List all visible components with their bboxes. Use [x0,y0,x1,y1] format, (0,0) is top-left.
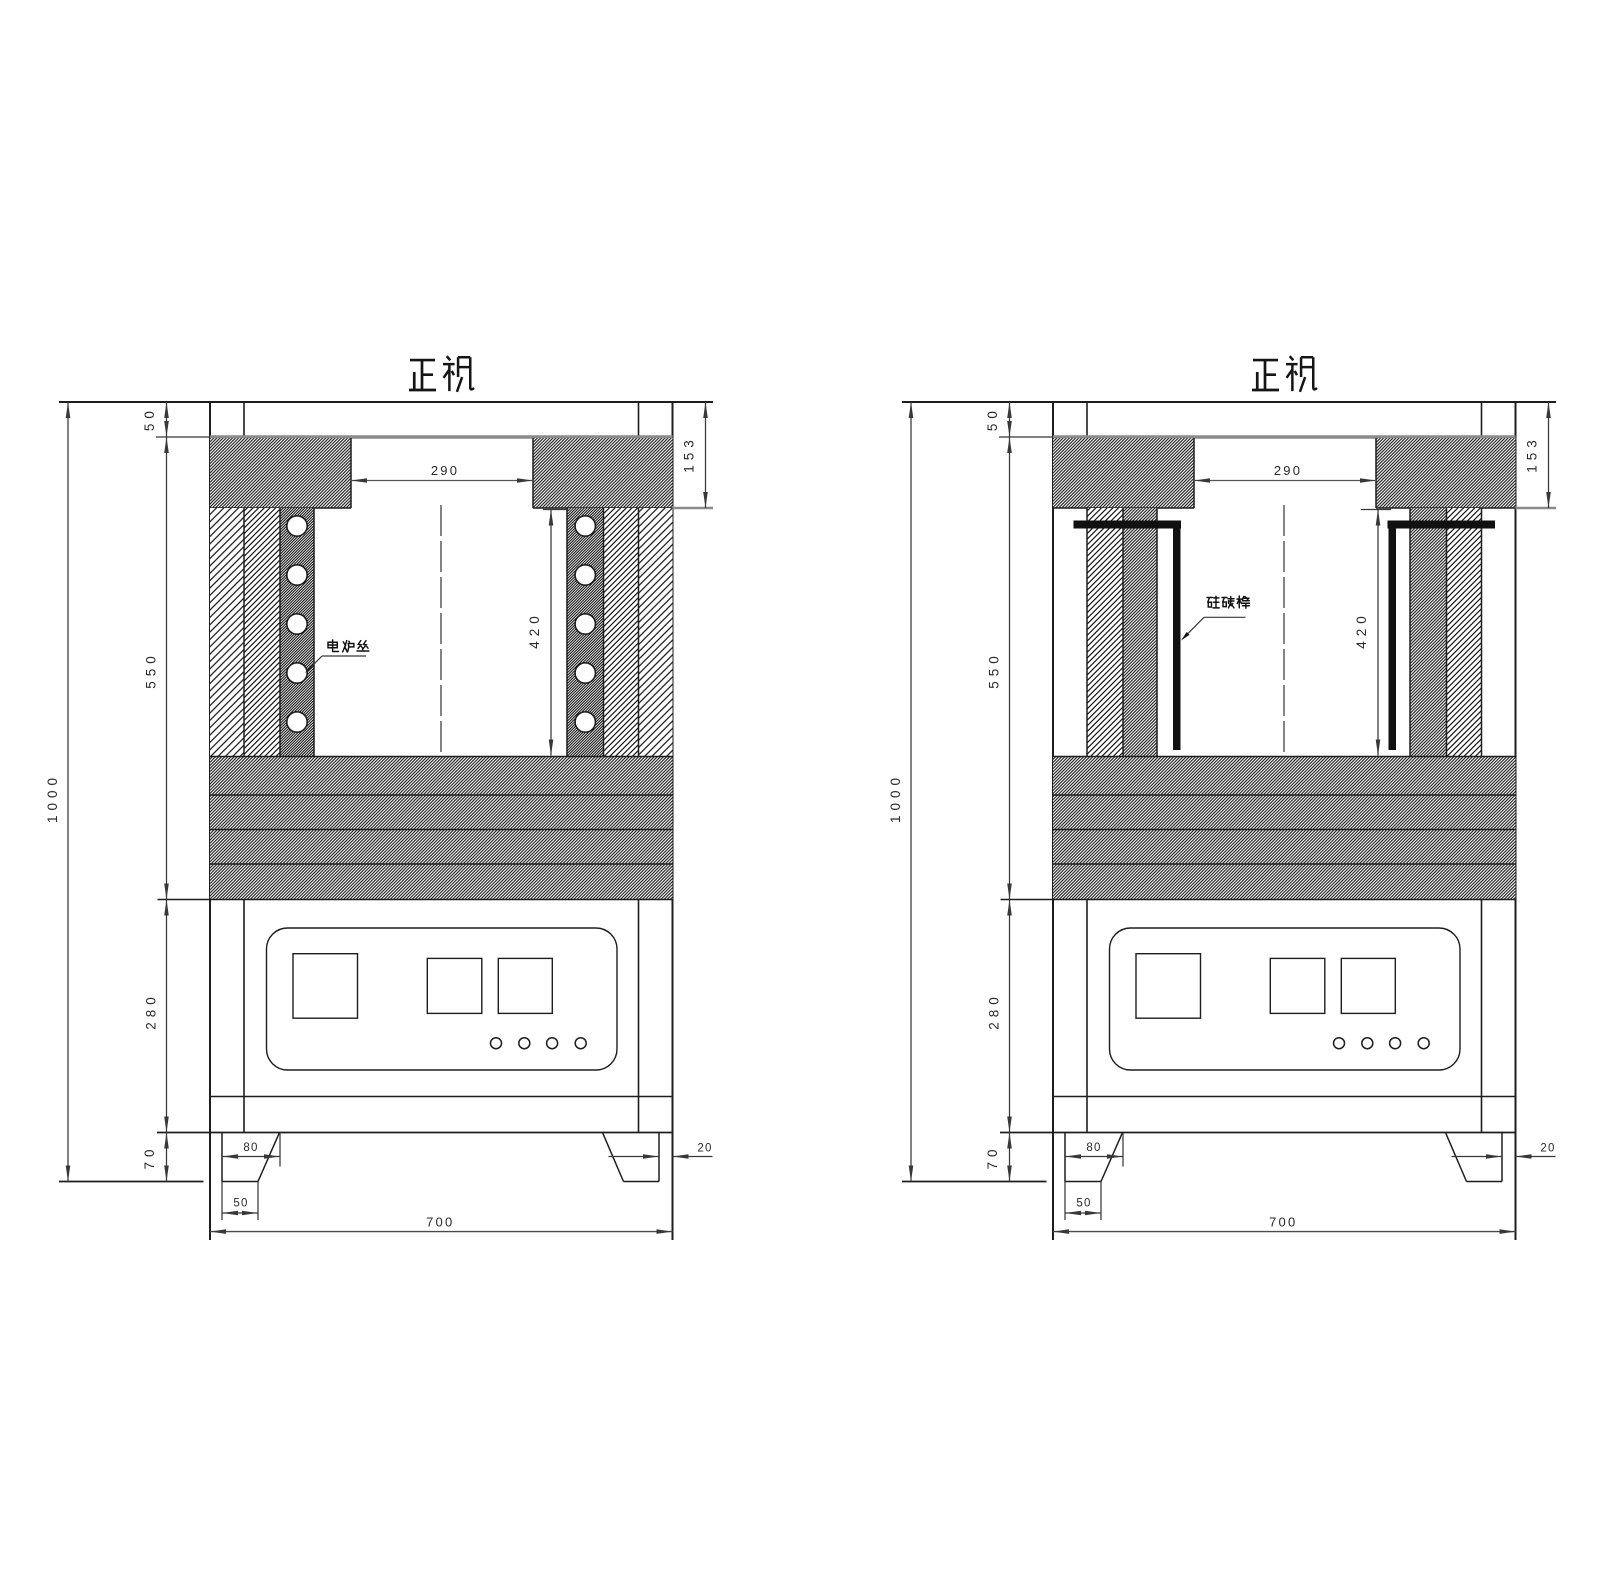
svg-text:550: 550 [144,651,159,689]
svg-text:50: 50 [142,406,157,431]
svg-text:1000: 1000 [45,773,60,823]
svg-text:280: 280 [144,992,159,1030]
svg-text:70: 70 [142,1144,157,1169]
svg-text:50: 50 [1076,1198,1091,1210]
svg-text:153: 153 [682,435,697,473]
svg-text:550: 550 [987,651,1002,689]
svg-text:290: 290 [1274,463,1302,478]
svg-text:1000: 1000 [888,773,903,823]
svg-text:80: 80 [1086,1142,1101,1154]
svg-text:420: 420 [1354,611,1369,649]
svg-text:420: 420 [527,611,542,649]
svg-text:20: 20 [697,1143,712,1155]
svg-text:290: 290 [431,463,459,478]
svg-text:700: 700 [1269,1215,1297,1230]
svg-text:50: 50 [985,406,1000,431]
svg-text:20: 20 [1540,1143,1555,1155]
svg-text:280: 280 [987,992,1002,1030]
svg-text:80: 80 [243,1142,258,1154]
svg-text:50: 50 [233,1198,248,1210]
svg-text:153: 153 [1525,435,1540,473]
svg-text:70: 70 [985,1144,1000,1169]
svg-text:700: 700 [426,1215,454,1230]
